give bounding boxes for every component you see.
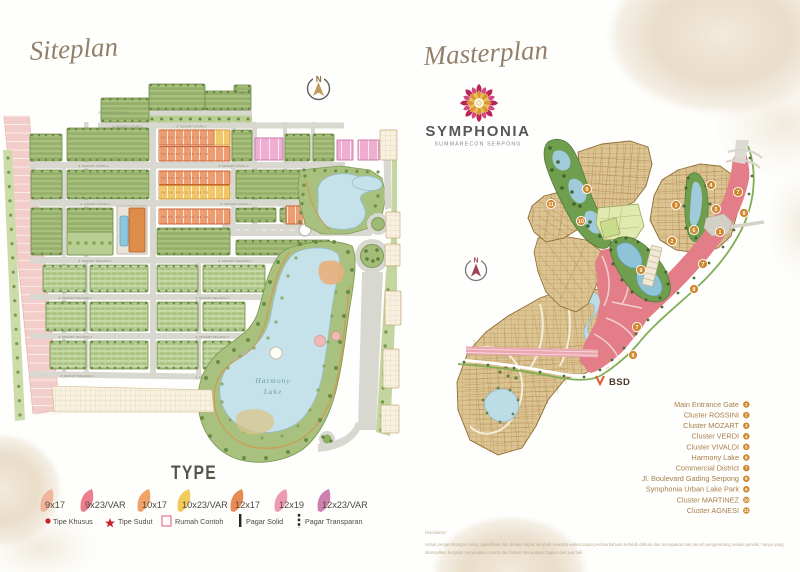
svg-text:11: 11 <box>548 202 554 208</box>
svg-text:Lake: Lake <box>263 387 283 396</box>
svg-text:12x19: 12x19 <box>279 500 304 510</box>
svg-text:N: N <box>316 75 322 84</box>
svg-text:12x17: 12x17 <box>235 500 260 510</box>
svg-text:9x17: 9x17 <box>45 500 65 510</box>
svg-text:Cluster MARTINEZ: Cluster MARTINEZ <box>677 495 740 504</box>
svg-text:Disclaimer:: Disclaimer: <box>425 530 447 535</box>
svg-text:Rumah Contoh: Rumah Contoh <box>175 517 223 526</box>
svg-text:Jl. MOZART SELATAN 1: Jl. MOZART SELATAN 1 <box>218 259 252 263</box>
svg-text:9: 9 <box>586 187 589 193</box>
svg-text:5: 5 <box>715 207 718 213</box>
svg-text:Pagar Transparan: Pagar Transparan <box>305 517 363 526</box>
svg-text:TYPE: TYPE <box>171 463 217 484</box>
svg-text:Jl. MOZART UTARA 1: Jl. MOZART UTARA 1 <box>220 202 251 206</box>
svg-text:Jl. MOZART SELATAN 4: Jl. MOZART SELATAN 4 <box>60 374 94 378</box>
svg-text:SUMMARECON SERPONG: SUMMARECON SERPONG <box>434 142 521 148</box>
svg-text:2: 2 <box>671 239 674 245</box>
svg-text:10x23/VAR: 10x23/VAR <box>182 500 228 510</box>
svg-text:9x23/VAR: 9x23/VAR <box>85 500 126 510</box>
svg-text:38 36 34 32 30 28 26: 38 36 34 32 30 28 26 <box>161 191 209 195</box>
svg-text:Jl. MOZART SELATAN 2: Jl. MOZART SELATAN 2 <box>58 296 92 300</box>
svg-text:Symphonia Urban Lake Park: Symphonia Urban Lake Park <box>646 485 740 494</box>
svg-text:7: 7 <box>636 325 639 331</box>
svg-text:Jl. MOZART SELATAN 3: Jl. MOZART SELATAN 3 <box>58 335 92 339</box>
svg-text:Harmony Lake: Harmony Lake <box>692 453 739 462</box>
svg-text:Tipe Sudut: Tipe Sudut <box>118 517 153 526</box>
svg-text:38 36 34 32 30 28 26: 38 36 34 32 30 28 26 <box>161 136 209 140</box>
svg-text:Jl. MOZART UTARA 3: Jl. MOZART UTARA 3 <box>112 125 143 129</box>
svg-text:Cluster ROSSINI: Cluster ROSSINI <box>684 411 739 420</box>
svg-text:Cluster VIVALDI: Cluster VIVALDI <box>686 442 739 451</box>
svg-text:8: 8 <box>632 353 635 359</box>
svg-text:12x23/VAR: 12x23/VAR <box>322 500 368 510</box>
svg-text:10: 10 <box>578 219 584 225</box>
svg-text:3: 3 <box>675 203 678 209</box>
svg-text:Untuk pengembangan mutu, spesi: Untuk pengembangan mutu, spesifikasi dan… <box>425 542 784 547</box>
svg-text:Jl. Boulevard Gading Serpong: Jl. Boulevard Gading Serpong <box>642 474 739 483</box>
svg-text:Pagar Solid: Pagar Solid <box>246 517 283 526</box>
svg-text:Jl. MOZART UTARA 1: Jl. MOZART UTARA 1 <box>80 202 111 206</box>
svg-text:7: 7 <box>737 190 740 196</box>
svg-text:Cluster AGNESI: Cluster AGNESI <box>687 506 739 515</box>
svg-text:9: 9 <box>640 268 643 274</box>
svg-text:Tipe Khusus: Tipe Khusus <box>53 517 93 526</box>
svg-text:7: 7 <box>702 262 705 268</box>
svg-text:Jl. MOZART UTARA 3: Jl. MOZART UTARA 3 <box>176 125 207 129</box>
svg-text:N: N <box>473 258 478 265</box>
svg-text:Siteplan: Siteplan <box>29 31 119 66</box>
svg-text:8: 8 <box>693 287 696 293</box>
svg-text:Jl. MOZART SELATAN 1: Jl. MOZART SELATAN 1 <box>78 259 112 263</box>
svg-text:Cluster MOZART: Cluster MOZART <box>683 421 739 430</box>
svg-text:Jl. MOZART UTARA 2: Jl. MOZART UTARA 2 <box>218 164 249 168</box>
svg-text:Commercial District: Commercial District <box>676 464 739 473</box>
svg-text:10: 10 <box>744 497 749 502</box>
svg-text:Jl. MOZART UTARA 2: Jl. MOZART UTARA 2 <box>78 164 109 168</box>
svg-text:Harmony: Harmony <box>254 376 290 385</box>
svg-text:Jl. MOZART SELATAN 2: Jl. MOZART SELATAN 2 <box>195 296 229 300</box>
svg-text:38 36 34 32 30 28 26: 38 36 34 32 30 28 26 <box>161 215 209 219</box>
svg-text:SYMPHONIA: SYMPHONIA <box>425 123 530 140</box>
svg-text:Main Entrance Gate: Main Entrance Gate <box>674 400 739 409</box>
svg-text:BSD: BSD <box>609 377 630 388</box>
svg-text:1: 1 <box>719 230 722 236</box>
svg-text:10x17: 10x17 <box>142 500 167 510</box>
svg-text:Jl. MOZART SELATAN 3: Jl. MOZART SELATAN 3 <box>195 335 229 339</box>
svg-text:8: 8 <box>743 211 746 217</box>
svg-text:Cluster VERDI: Cluster VERDI <box>692 432 739 441</box>
svg-text:38 36 34 32 30 28 26: 38 36 34 32 30 28 26 <box>161 152 209 156</box>
svg-text:Jl. MOZART UTARA 3: Jl. MOZART UTARA 3 <box>98 111 129 115</box>
svg-text:6: 6 <box>693 228 696 234</box>
svg-text:4: 4 <box>710 183 713 189</box>
svg-text:11: 11 <box>744 508 749 513</box>
svg-text:ditampilkan berjalah merupakan: ditampilkan berjalah merupakan contoh da… <box>425 550 583 555</box>
svg-text:38 36 34 32 30 28 26: 38 36 34 32 30 28 26 <box>161 176 209 180</box>
